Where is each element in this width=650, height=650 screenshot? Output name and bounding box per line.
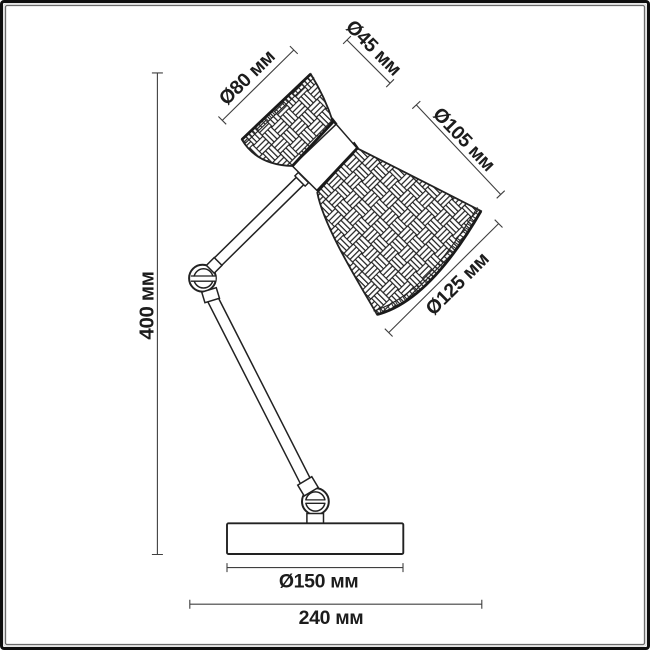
svg-text:240 мм: 240 мм (299, 607, 364, 629)
svg-text:Ø150 мм: Ø150 мм (279, 571, 359, 593)
svg-text:400 мм: 400 мм (136, 271, 159, 339)
